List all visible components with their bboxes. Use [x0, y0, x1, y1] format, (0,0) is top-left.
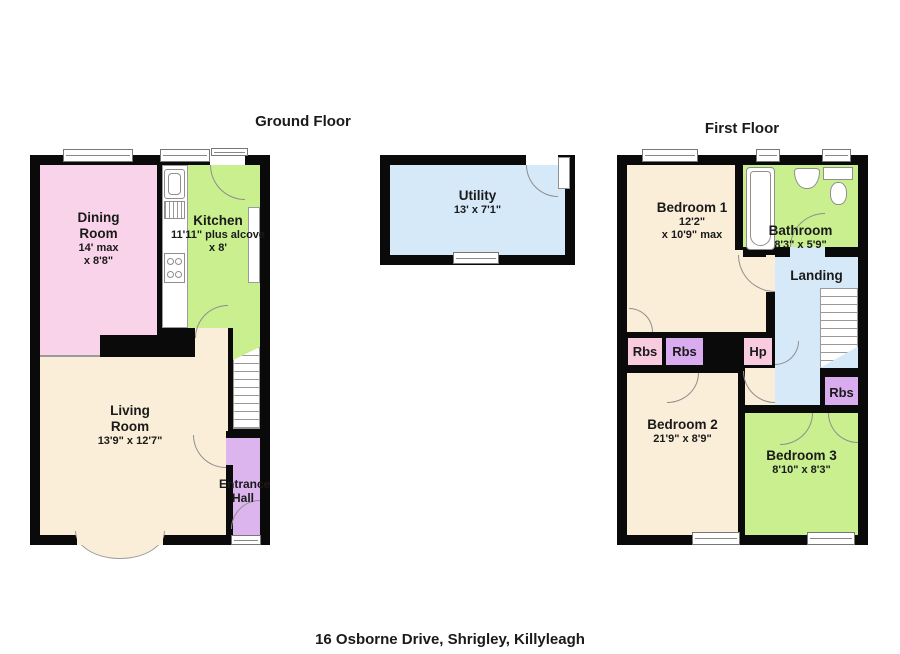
landing	[775, 370, 820, 405]
living-room-dims: 13'9" x 12'7"	[50, 435, 210, 448]
bathroom-dims: 8'3" x 5'9"	[743, 239, 858, 252]
utility-plan: Utility 13' x 7'1"	[380, 155, 575, 265]
stairs	[233, 347, 260, 429]
dining-room-name: Dining Room	[68, 210, 130, 242]
utility-label: Utility 13' x 7'1"	[390, 188, 565, 217]
room-divider-line	[40, 355, 100, 357]
window-bedroom-2	[692, 532, 740, 545]
cupboard-row-wall	[627, 365, 738, 373]
front-door-threshold	[231, 535, 261, 545]
living-room-label: Living Room 13'9" x 12'7"	[50, 403, 210, 448]
kitchen-label: Kitchen 11'11" plus alcove x 8'	[158, 213, 278, 255]
entrance-hall-name: Entrance Hall	[219, 477, 267, 505]
cupboard-rbs-1: Rbs	[628, 338, 662, 365]
bedroom-divider-wall	[738, 365, 745, 535]
window-bedroom-1	[642, 149, 698, 162]
window-bath	[756, 149, 780, 162]
landing-name: Landing	[775, 268, 858, 284]
window-kitchen	[160, 149, 210, 162]
bedroom-3-name: Bedroom 3	[745, 448, 858, 464]
bedroom-2-name: Bedroom 2	[627, 417, 738, 433]
window-toilet	[822, 149, 851, 162]
window-utility	[453, 252, 499, 264]
dining-room-dims: x 8'8"	[40, 255, 157, 268]
dining-room-dims: 14' max	[40, 242, 157, 255]
hall-top-wall	[226, 431, 262, 438]
dining-room-label: Dining Room 14' max x 8'8"	[40, 210, 157, 268]
bay-window	[77, 527, 163, 545]
cupboard-hp: Hp	[744, 338, 772, 365]
kitchen-door-threshold	[211, 148, 248, 156]
utility-name: Utility	[390, 188, 565, 204]
kitchen-dims: x 8'	[158, 242, 278, 255]
dining-room	[40, 335, 100, 357]
cupboard-row-wall	[627, 332, 775, 338]
cupboard-rbs-3: Rbs	[825, 377, 858, 408]
first-floor-plan: Rbs Rbs Hp Rbs	[617, 155, 868, 545]
window-dining	[63, 149, 133, 162]
kitchen-dims: 11'11" plus alcove	[158, 229, 278, 242]
sink-icon	[164, 169, 185, 199]
bedroom-3-label: Bedroom 3 8'10" x 8'3"	[745, 448, 858, 477]
ground-floor-title: Ground Floor	[203, 113, 403, 130]
cupboard-rbs-3-label: Rbs	[829, 385, 854, 400]
entrance-door-opening	[226, 438, 233, 465]
cupboard-rbs-2: Rbs	[666, 338, 703, 365]
bedroom-1	[627, 165, 735, 332]
bedroom-1-dims: x 10'9" max	[637, 229, 747, 242]
utility-dims: 13' x 7'1"	[390, 204, 565, 217]
bedroom-1-label: Bedroom 1 12'2" x 10'9" max	[637, 200, 747, 242]
living-room-name: Living Room	[99, 403, 161, 435]
cupboard-rbs-1-label: Rbs	[633, 344, 658, 359]
bedroom-3-wall	[745, 405, 858, 413]
window-bedroom-3	[807, 532, 855, 545]
stairs-wall	[820, 368, 858, 377]
bathroom-name: Bathroom	[743, 223, 858, 239]
toilet-bowl-icon	[830, 182, 847, 205]
kitchen-door-opening	[210, 155, 245, 165]
utility-door-opening	[526, 155, 558, 165]
bathroom-label: Bathroom 8'3" x 5'9"	[743, 223, 858, 252]
hob-icon	[164, 253, 185, 283]
utility-door-leaf	[558, 157, 570, 189]
address-caption: 16 Osborne Drive, Shrigley, Killyleagh	[0, 631, 900, 648]
cupboard-rbs-2-label: Rbs	[672, 344, 697, 359]
kitchen-wall	[162, 328, 195, 338]
floorplan-page: Ground Floor First Floor	[0, 0, 900, 654]
entrance-hall-label: Entrance Hall	[219, 477, 267, 505]
landing-label: Landing	[775, 268, 858, 284]
bedroom-1-name: Bedroom 1	[637, 200, 747, 216]
bedroom-1-dims: 12'2"	[637, 216, 747, 229]
ground-floor-plan: Dining Room 14' max x 8'8" Kitchen 11'11…	[30, 155, 270, 545]
bedroom-2-dims: 21'9" x 8'9"	[627, 433, 738, 446]
bedroom-2-label: Bedroom 2 21'9" x 8'9"	[627, 417, 738, 446]
bedroom-3-dims: 8'10" x 8'3"	[745, 464, 858, 477]
kitchen-name: Kitchen	[158, 213, 278, 229]
toilet-cistern-icon	[823, 167, 853, 180]
cupboard-hp-label: Hp	[749, 344, 766, 359]
first-floor-title: First Floor	[642, 120, 842, 137]
